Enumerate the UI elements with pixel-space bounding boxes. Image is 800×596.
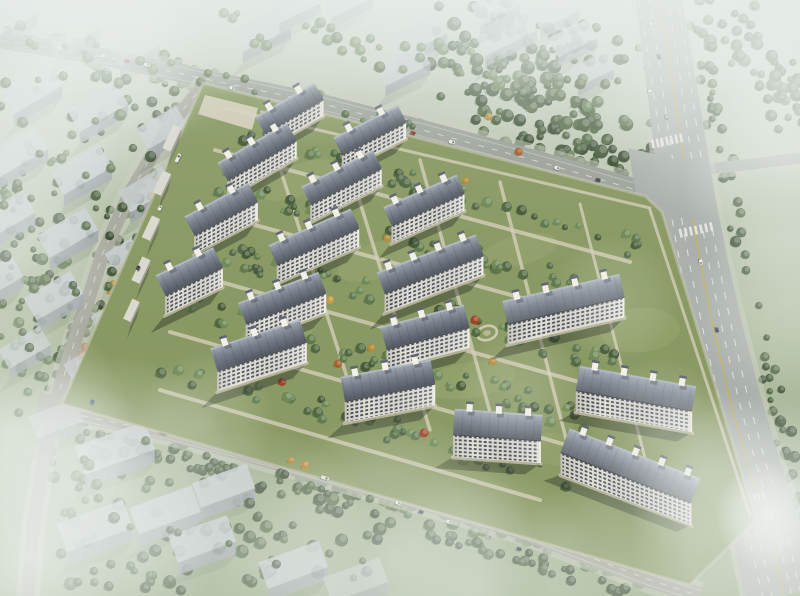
aerial-site-plan-rendering (0, 0, 800, 596)
aerial-rendering-viewport (0, 0, 800, 596)
color-grade-overlay (0, 0, 800, 596)
